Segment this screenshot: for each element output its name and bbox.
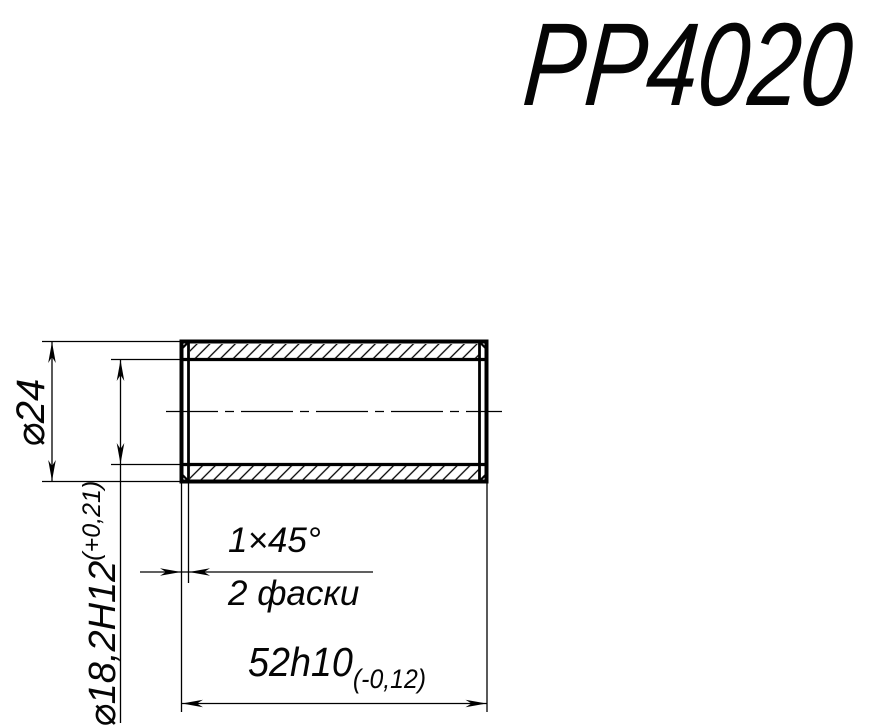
drawing-title: PP4020 [520,6,857,124]
chamfer-note: 2 фаски [228,576,359,611]
inner-diameter-tolerance: (+0,21) [78,481,106,561]
length-value: 52h10 [248,639,353,685]
inner-diameter-value: ⌀18,2H12 [82,561,124,725]
length-tolerance: (-0,12) [353,664,426,694]
inner-diameter-label: ⌀18,2H12(+0,21) [65,479,119,725]
hatch-bottom [190,466,479,480]
technical-drawing: PP4020 ⌀24 ⌀18,2H12(+0,21) 1×45° 2 фаски… [0,0,870,725]
hatch-top [190,344,479,358]
length-label: 52h10(-0,12) [248,642,426,693]
chamfer-label: 1×45° [228,523,321,558]
outer-diameter-dimension [42,342,181,482]
outer-diameter-label: ⌀24 [8,372,54,454]
